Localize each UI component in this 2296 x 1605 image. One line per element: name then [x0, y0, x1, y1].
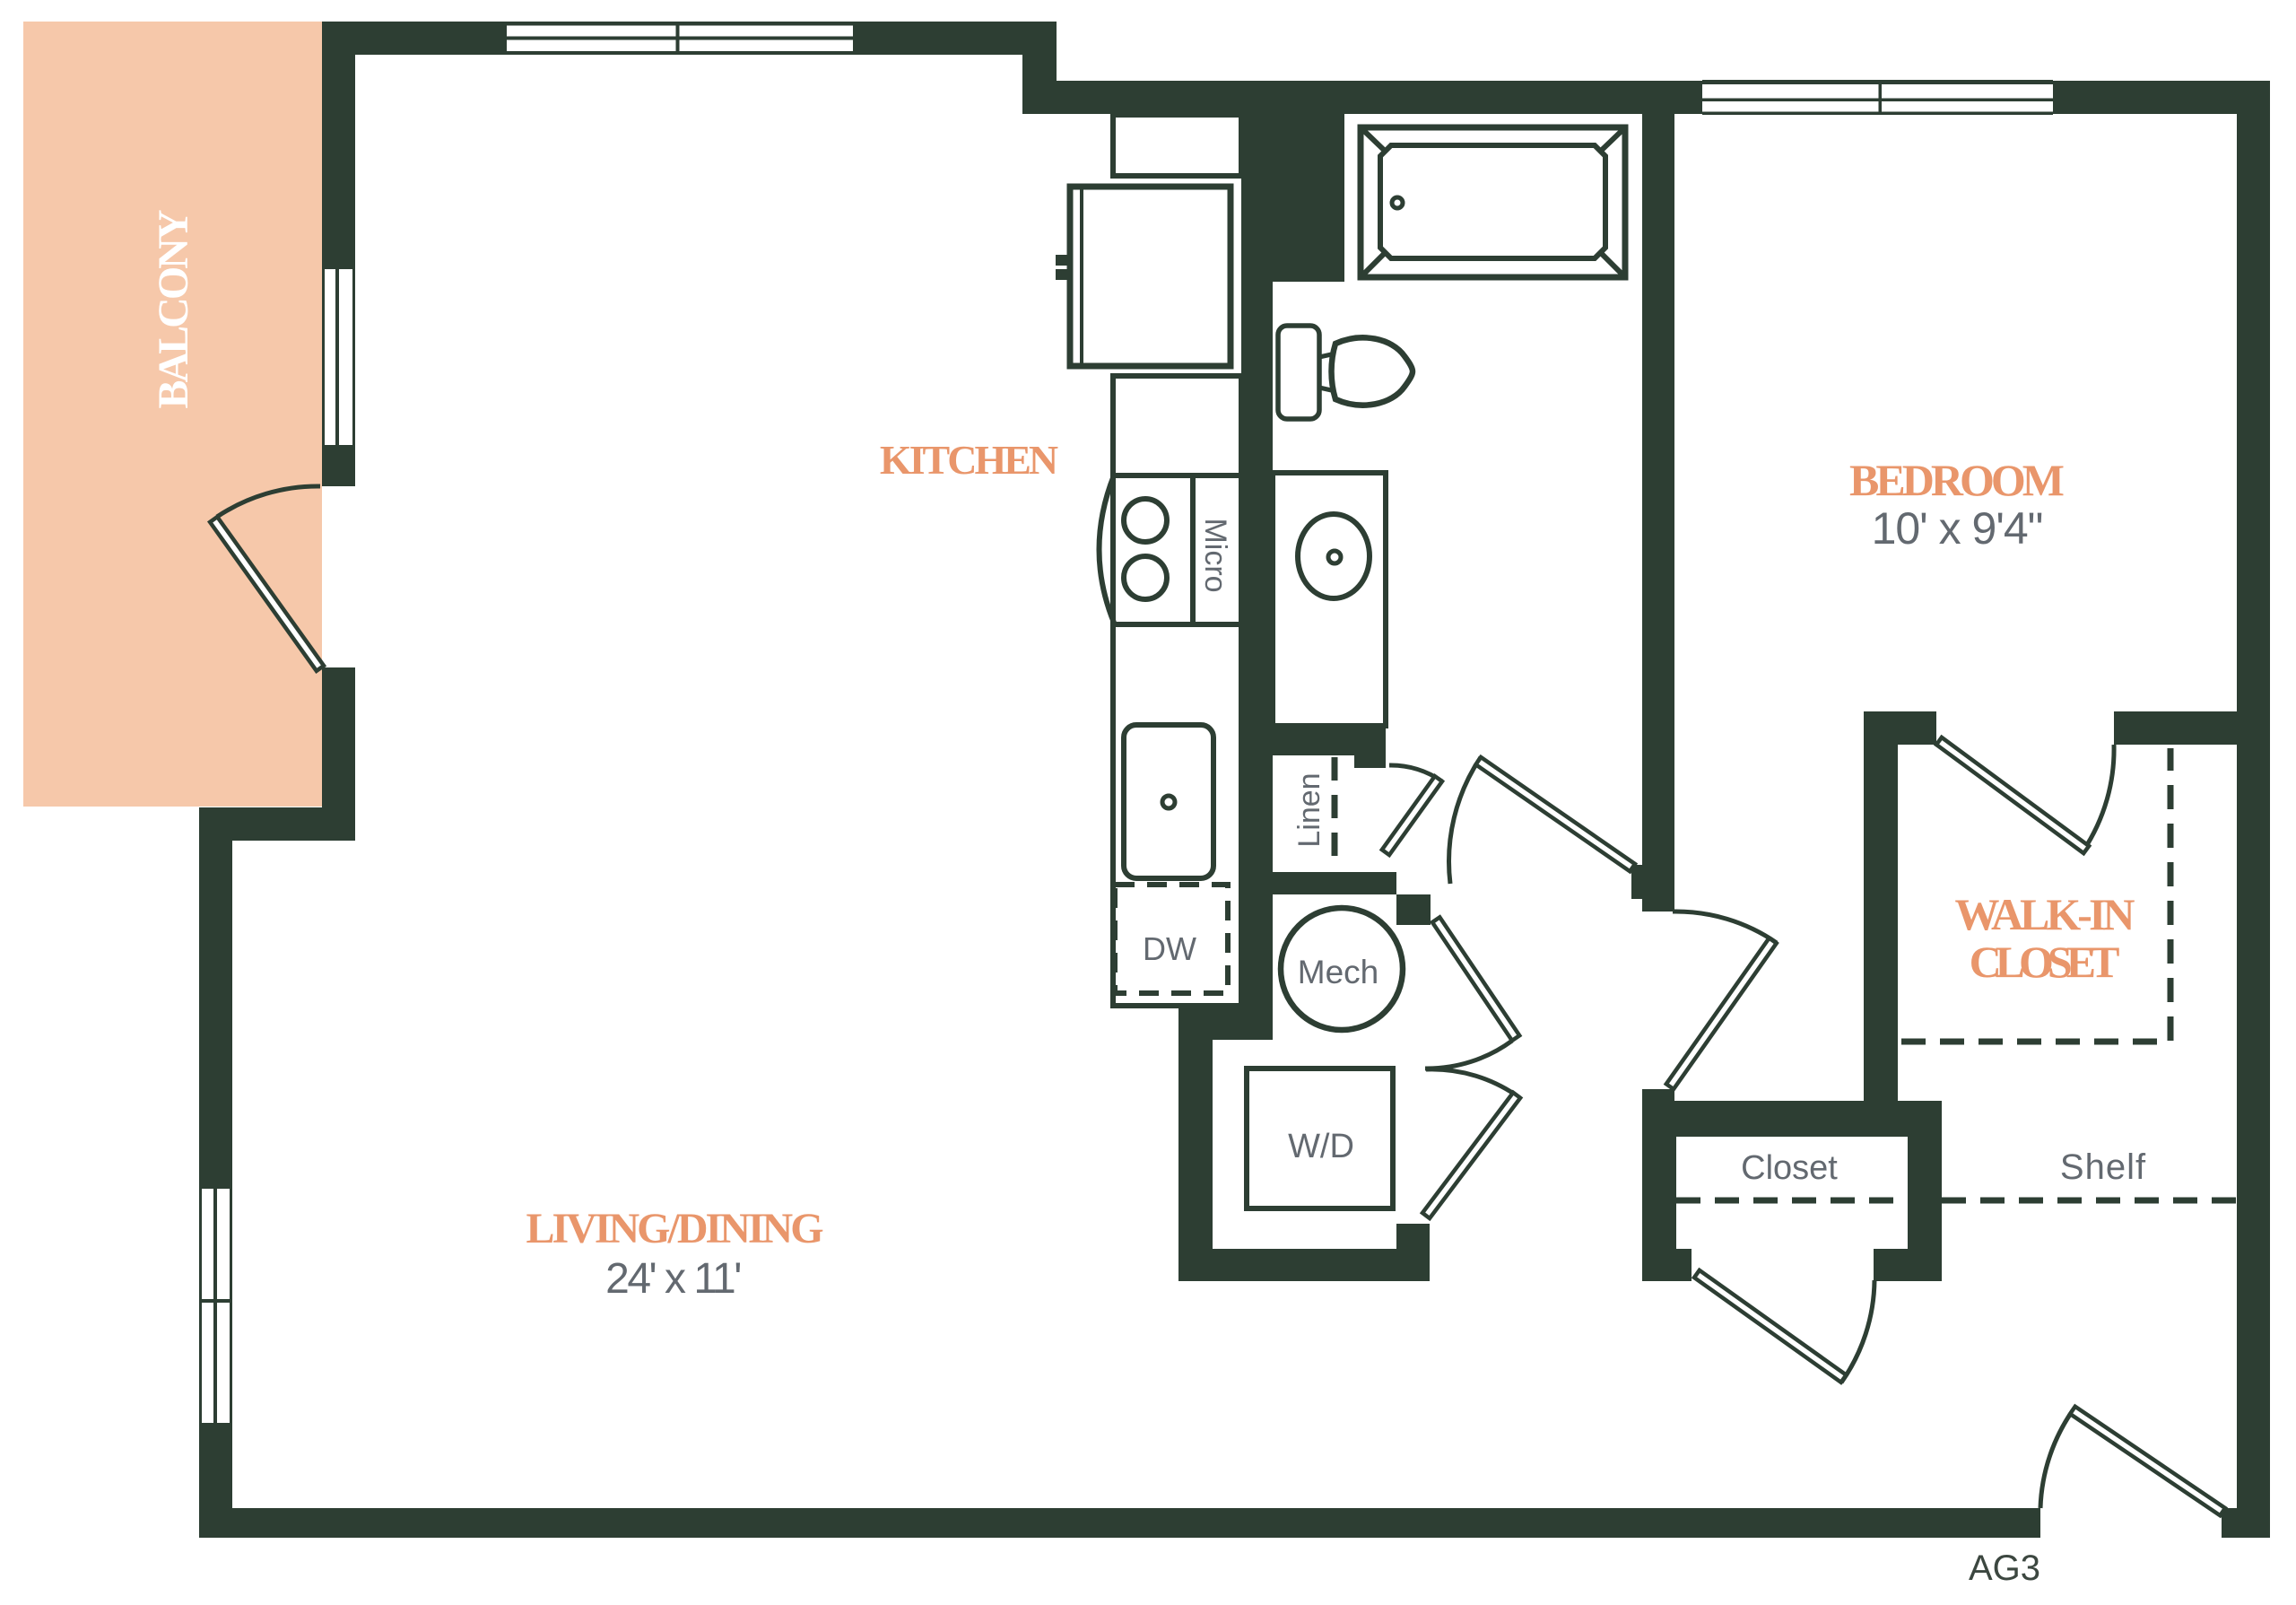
svg-text:CLOSET: CLOSET — [1970, 937, 2120, 987]
svg-text:DW: DW — [1143, 930, 1196, 967]
svg-text:WALK-IN: WALK-IN — [1954, 889, 2135, 939]
svg-text:W/D: W/D — [1288, 1128, 1354, 1165]
svg-text:Micro: Micro — [1198, 518, 1232, 592]
svg-text:BEDROOM: BEDROOM — [1849, 455, 2064, 505]
svg-text:BALCONY: BALCONY — [150, 210, 197, 408]
svg-text:Linen: Linen — [1292, 772, 1326, 847]
svg-text:Closet: Closet — [1741, 1149, 1838, 1187]
svg-text:AG3: AG3 — [1969, 1548, 2040, 1588]
svg-text:10' x 9'4": 10' x 9'4" — [1872, 503, 2043, 554]
svg-text:LIVING/DINING: LIVING/DINING — [526, 1205, 823, 1252]
svg-text:Mech: Mech — [1298, 954, 1378, 990]
svg-text:24' x 11': 24' x 11' — [605, 1255, 740, 1303]
svg-text:KITCHEN: KITCHEN — [880, 437, 1058, 483]
svg-text:Shelf: Shelf — [2060, 1147, 2146, 1187]
